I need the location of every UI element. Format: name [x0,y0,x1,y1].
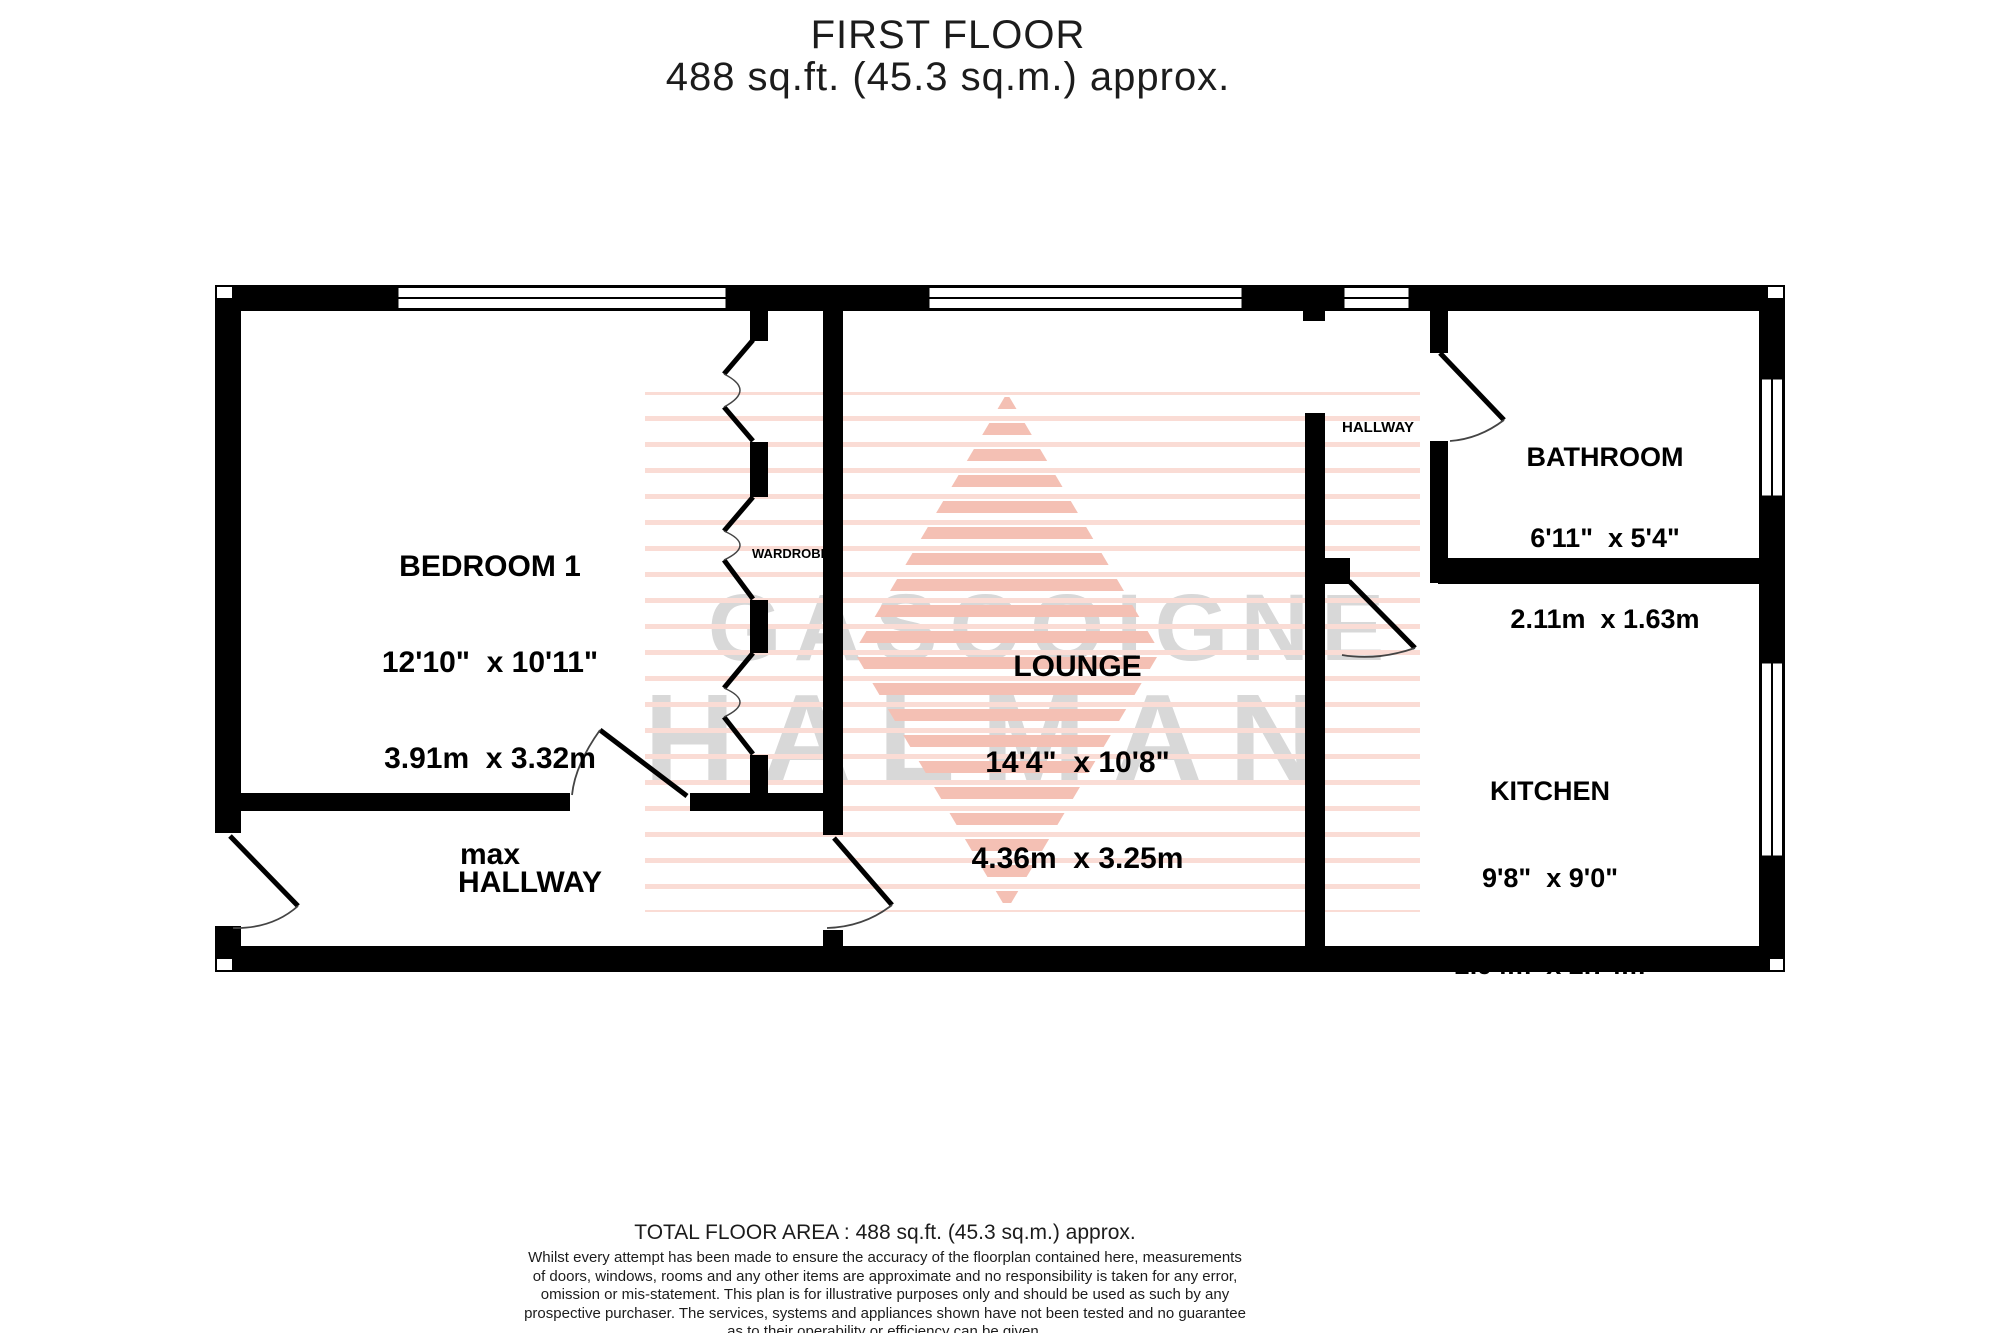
hallway-main-label: HALLWAY [380,866,680,900]
disclaimer-line-5: as to their operability or efficiency ca… [285,1323,1485,1333]
wall-bedroom-hallway-right [690,793,843,811]
kitchen-dims-metric: 2.94m x 2.74m [1395,951,1705,980]
bathroom-window [1761,378,1784,497]
wardrobe-jamb-top [750,311,768,341]
bedroom-dims-metric: 3.91m x 3.32m [295,743,685,775]
wardrobe-jamb-bottom [750,755,768,795]
bathroom-label-block: BATHROOM 6'11" x 5'4" 2.11m x 1.63m [1455,390,1755,687]
bathroom-dims-metric: 2.11m x 1.63m [1455,606,1755,633]
wall-lounge-door-stub [823,930,843,946]
wall-bedroom-lounge [823,311,843,835]
bedroom-name: BEDROOM 1 [295,551,685,583]
lounge-dims-imperial: 14'4" x 10'8" [880,747,1275,779]
lounge-window [928,287,1243,310]
lounge-name: LOUNGE [880,651,1275,683]
wall-outer-left-upper [215,285,241,833]
wall-bathroom-left-upper [1430,311,1448,353]
bedroom-dims-imperial: 12'10" x 10'11" [295,647,685,679]
wall-lounge-kitchen [1305,413,1325,946]
lounge-label-block: LOUNGE 14'4" x 10'8" 4.36m x 3.25m [880,587,1275,939]
lounge-dims-metric: 4.36m x 3.25m [880,843,1275,875]
wall-kitchen-door-header [1305,558,1350,584]
bedroom-window [397,287,727,310]
kitchen-name: KITCHEN [1395,777,1705,806]
plan-title: FIRST FLOOR 488 sq.ft. (45.3 sq.m.) appr… [448,14,1448,98]
kitchen-dims-imperial: 9'8" x 9'0" [1395,864,1705,893]
kitchen-window [1761,662,1784,857]
wardrobe-jamb-mid1 [750,442,768,497]
hallway-upper-label: HALLWAY [1330,419,1426,436]
kitchen-label-block: KITCHEN 9'8" x 9'0" 2.94m x 2.74m [1395,719,1705,1038]
disclaimer-line-4: prospective purchaser. The services, sys… [285,1305,1485,1324]
wall-lounge-hallway-jamb [1303,311,1325,321]
disclaimer-line-3: omission or mis-statement. This plan is … [285,1286,1485,1305]
bathroom-dims-imperial: 6'11" x 5'4" [1455,525,1755,552]
total-floor-area: TOTAL FLOOR AREA : 488 sq.ft. (45.3 sq.m… [285,1220,1485,1246]
floor-name: FIRST FLOOR [448,14,1448,56]
disclaimer-line-1: Whilst every attempt has been made to en… [285,1249,1485,1268]
disclaimer-line-2: of doors, windows, rooms and any other i… [285,1268,1485,1287]
bathroom-name: BATHROOM [1455,444,1755,471]
footer-block: TOTAL FLOOR AREA : 488 sq.ft. (45.3 sq.m… [285,1220,1485,1333]
floorplan-page: GASCOIGNE HALMAN WARDROBE [0,0,2000,1333]
floor-area: 488 sq.ft. (45.3 sq.m.) approx. [448,56,1448,98]
entrance-door [230,836,298,928]
wardrobe-jamb-mid2 [750,600,768,653]
hallway-window [1343,287,1410,310]
wardrobe-label: WARDROBE [752,546,830,561]
